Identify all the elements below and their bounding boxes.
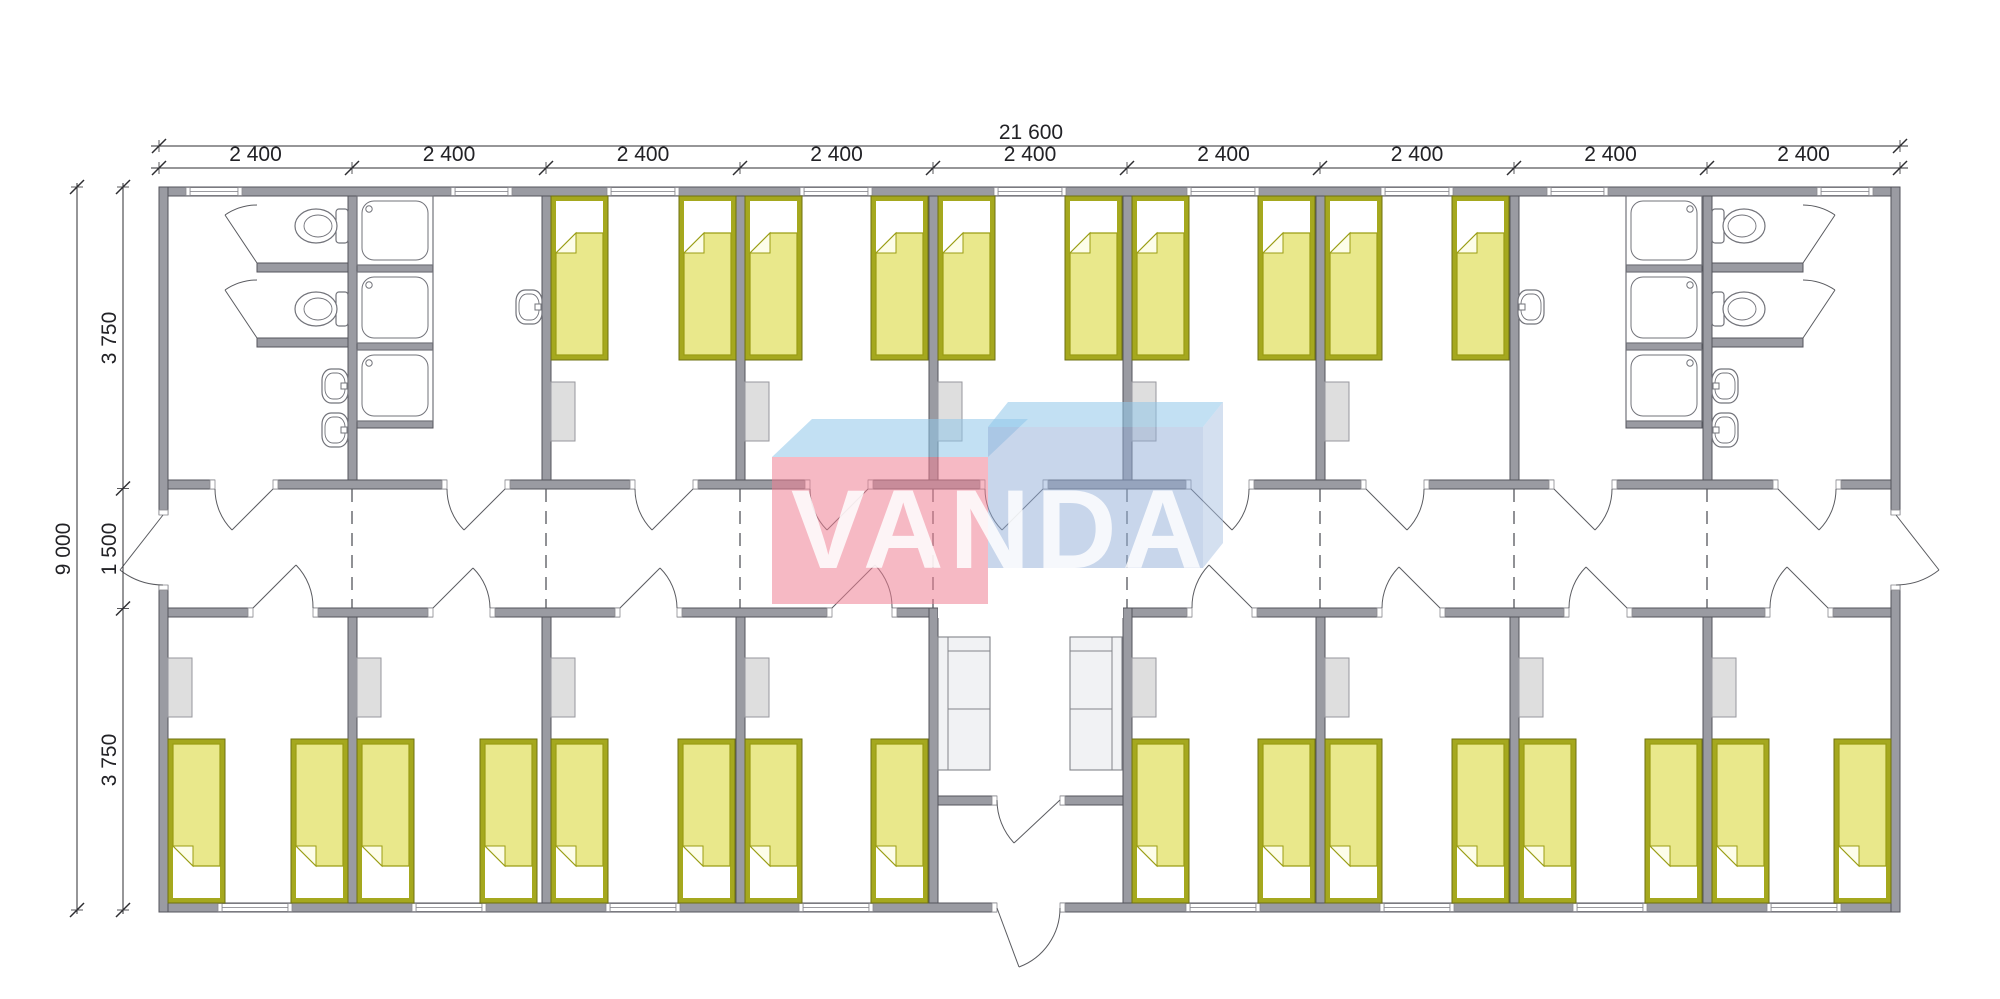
dimension-label: 1 500: [98, 523, 121, 576]
dimension-label: 3 750: [98, 312, 121, 365]
door-opening: [1890, 515, 1901, 585]
wardrobe: [1325, 382, 1349, 441]
window: [1573, 904, 1647, 912]
bed: [678, 739, 735, 903]
door-swing-arc: [225, 280, 257, 290]
door-opening: [1554, 479, 1612, 490]
door-swing-arc: [473, 568, 490, 608]
bed: [1132, 739, 1189, 903]
shower-tray: [1626, 350, 1702, 421]
door-leaf: [652, 489, 693, 530]
door-leaf: [1787, 567, 1828, 608]
door-leaf: [1399, 567, 1440, 608]
logo-top-face-right: [988, 402, 1223, 427]
wall: [1626, 343, 1702, 350]
window: [1817, 188, 1873, 196]
door-jamb: [1377, 608, 1382, 617]
wall: [1712, 263, 1803, 272]
door-jamb: [1564, 608, 1569, 617]
door-opening: [1778, 479, 1836, 490]
wall: [542, 617, 551, 903]
wall: [1123, 608, 1132, 903]
wall: [257, 263, 348, 272]
shower-outline: [1626, 350, 1702, 421]
bed: [551, 739, 608, 903]
toilet-bowl: [295, 292, 337, 326]
sofa: [938, 637, 990, 770]
wall: [1703, 617, 1712, 903]
door-jamb: [1440, 608, 1445, 617]
bed: [938, 196, 995, 360]
door-opening: [1569, 607, 1627, 618]
dimension-label: 2 400: [229, 143, 282, 166]
wash-basin: [322, 413, 348, 447]
door-swing-arc: [120, 570, 163, 585]
window: [412, 904, 486, 912]
door-leaf: [1366, 489, 1407, 530]
door-jamb: [442, 480, 447, 489]
bed: [1325, 196, 1382, 360]
door-jamb: [1891, 510, 1900, 515]
window-jamb: [1449, 188, 1453, 196]
shower-tray: [357, 196, 433, 265]
door-leaf: [1586, 567, 1627, 608]
door-leaf: [1803, 290, 1835, 338]
wardrobe: [745, 658, 769, 717]
door-swing-arc: [1819, 489, 1836, 530]
toilet-bowl: [1723, 209, 1765, 243]
door-swing-arc: [1803, 280, 1835, 290]
door-leaf: [225, 290, 257, 338]
door-opening: [158, 515, 169, 585]
door-opening: [1382, 607, 1440, 618]
door-swing-arc: [215, 489, 232, 530]
door-opening: [997, 902, 1060, 913]
door-jamb: [1249, 480, 1254, 489]
wardrobe: [1712, 658, 1736, 717]
door-leaf: [997, 908, 1019, 967]
door-jamb: [1060, 903, 1065, 912]
window-jamb: [799, 904, 803, 912]
wardrobe: [745, 382, 769, 441]
door-jamb: [1424, 480, 1429, 489]
bed: [1258, 739, 1315, 903]
door-jamb: [1891, 585, 1900, 590]
sofa-outline: [1070, 637, 1122, 770]
window-jamb: [1450, 904, 1454, 912]
basin-tap: [341, 427, 347, 433]
bed: [745, 196, 802, 360]
door-jamb: [1765, 608, 1770, 617]
door-leaf: [620, 568, 660, 608]
window-jamb: [607, 188, 611, 196]
window-jamb: [675, 188, 679, 196]
dimension-label: 2 400: [617, 143, 670, 166]
wall: [1626, 265, 1702, 272]
window-jamb: [288, 904, 292, 912]
wall: [1712, 338, 1803, 347]
door-opening: [1770, 607, 1828, 618]
door-opening: [832, 607, 892, 618]
door-jamb: [1836, 480, 1841, 489]
window-jamb: [1604, 188, 1608, 196]
door-jamb: [159, 510, 168, 515]
door-jamb: [1060, 796, 1065, 805]
wall: [348, 617, 357, 903]
wall: [357, 343, 433, 350]
window-jamb: [676, 904, 680, 912]
door-jamb: [428, 608, 433, 617]
window-jamb: [994, 188, 998, 196]
wardrobe: [1519, 658, 1543, 717]
door-jamb: [1549, 480, 1554, 489]
door-jamb: [992, 796, 997, 805]
door-leaf: [1803, 215, 1835, 263]
wall: [357, 265, 433, 272]
window-jamb: [218, 904, 222, 912]
window-jamb: [1817, 188, 1821, 196]
toilet: [295, 292, 348, 326]
door-swing-arc: [225, 205, 257, 215]
door-opening: [620, 607, 677, 618]
shower-tray: [1626, 196, 1702, 265]
window: [1767, 904, 1841, 912]
door-swing-arc: [1896, 570, 1939, 585]
door-swing-arc: [1770, 567, 1787, 608]
window-jamb: [451, 188, 455, 196]
door-opening: [215, 479, 273, 490]
door-jamb: [1627, 608, 1632, 617]
door-jamb: [313, 608, 318, 617]
wall: [357, 421, 433, 428]
wash-basin: [1712, 413, 1738, 447]
bed: [1712, 739, 1769, 903]
door-jamb: [677, 608, 682, 617]
door-leaf: [225, 215, 257, 263]
bed: [745, 739, 802, 903]
wardrobe: [1325, 658, 1349, 717]
bed: [1645, 739, 1702, 903]
window-jamb: [869, 904, 873, 912]
door-opening: [253, 607, 313, 618]
door-swing-arc: [1569, 567, 1586, 608]
wall: [736, 196, 745, 480]
door-swing-arc: [1803, 205, 1835, 215]
window-jamb: [482, 904, 486, 912]
wardrobe: [357, 658, 381, 717]
door-jamb: [615, 608, 620, 617]
sofa: [1070, 637, 1122, 770]
door-jamb: [1187, 608, 1192, 617]
bed: [1834, 739, 1891, 903]
bed: [1258, 196, 1315, 360]
bed: [1325, 739, 1382, 903]
door-leaf: [1209, 565, 1252, 608]
door-swing-arc: [1595, 489, 1612, 530]
wardrobe: [551, 382, 575, 441]
wall: [1510, 196, 1519, 480]
basin-tap: [1713, 383, 1719, 389]
wash-basin: [1712, 369, 1738, 403]
window-jamb: [1381, 188, 1385, 196]
basin-tap: [1713, 427, 1719, 433]
bed: [357, 739, 414, 903]
window: [1380, 904, 1454, 912]
window: [607, 188, 679, 196]
basin-tap: [1519, 304, 1525, 310]
shower-tray: [1626, 272, 1702, 343]
dimension-label: 2 400: [1004, 143, 1057, 166]
wall: [929, 608, 938, 903]
shower-tray: [357, 350, 433, 421]
toilet-bowl: [295, 209, 337, 243]
toilet-tank: [1712, 209, 1724, 243]
door-leaf: [1554, 489, 1595, 530]
wall: [736, 617, 745, 903]
dimension-label: 2 400: [1777, 143, 1830, 166]
door-jamb: [1612, 480, 1617, 489]
window: [800, 188, 872, 196]
shower-tray: [357, 272, 433, 343]
door-jamb: [892, 608, 897, 617]
window-jamb: [606, 904, 610, 912]
door-jamb: [693, 480, 698, 489]
door-leaf: [1896, 515, 1939, 570]
door-opening: [447, 479, 505, 490]
sofa-outline: [938, 637, 990, 770]
bed: [1132, 196, 1189, 360]
toilet-tank: [336, 209, 348, 243]
floor-plan-canvas: 21 6002 4002 4002 4002 4002 4002 4002 40…: [0, 0, 2000, 999]
toilet-bowl: [1723, 292, 1765, 326]
window-jamb: [1187, 188, 1191, 196]
door-swing-arc: [635, 489, 652, 530]
door-jamb: [1828, 608, 1833, 617]
vanda-watermark-text: VANDA: [791, 467, 1209, 592]
door-swing-arc: [997, 800, 1014, 843]
wash-basin: [1518, 290, 1544, 324]
window: [799, 904, 873, 912]
window-jamb: [1573, 904, 1577, 912]
dimension-label: 21 600: [999, 121, 1063, 144]
door-jamb: [630, 480, 635, 489]
door-leaf: [464, 489, 505, 530]
window-jamb: [1186, 904, 1190, 912]
toilet: [1712, 292, 1765, 326]
shower-outline: [1626, 272, 1702, 343]
door-jamb: [827, 608, 832, 617]
door-swing-arc: [1382, 567, 1399, 608]
door-jamb: [505, 480, 510, 489]
window-jamb: [1547, 188, 1551, 196]
dimension-label: 2 400: [810, 143, 863, 166]
door-swing-arc: [296, 565, 313, 608]
door-jamb: [1361, 480, 1366, 489]
toilet: [295, 209, 348, 243]
bed: [1519, 739, 1576, 903]
wardrobe: [168, 658, 192, 717]
window-jamb: [412, 904, 416, 912]
window: [1547, 188, 1608, 196]
bed: [480, 739, 537, 903]
door-jamb: [248, 608, 253, 617]
dimension-label: 2 400: [1197, 143, 1250, 166]
door-opening: [997, 795, 1060, 806]
basin-tap: [535, 304, 541, 310]
window-jamb: [1062, 188, 1066, 196]
door-leaf: [1778, 489, 1819, 530]
door-jamb: [490, 608, 495, 617]
window: [1381, 188, 1453, 196]
door-leaf: [253, 565, 296, 608]
window: [1187, 188, 1259, 196]
window-jamb: [1643, 904, 1647, 912]
wall: [1510, 617, 1519, 903]
window-jamb: [1837, 904, 1841, 912]
toilet-tank: [336, 292, 348, 326]
wall: [1703, 196, 1712, 480]
shower-outline: [357, 272, 433, 343]
bed: [679, 196, 736, 360]
window: [606, 904, 680, 912]
door-opening: [635, 479, 693, 490]
wardrobe: [1132, 658, 1156, 717]
toilet-tank: [1712, 292, 1724, 326]
wash-basin: [516, 290, 542, 324]
door-swing-arc: [1407, 489, 1424, 530]
bed: [291, 739, 348, 903]
wall: [348, 196, 357, 480]
dimension-label: 2 400: [1391, 143, 1444, 166]
window: [451, 188, 512, 196]
door-jamb: [1773, 480, 1778, 489]
wall: [1316, 617, 1325, 903]
door-jamb: [1252, 608, 1257, 617]
window-jamb: [238, 188, 242, 196]
window-jamb: [186, 188, 190, 196]
window: [186, 188, 242, 196]
door-swing-arc: [660, 568, 677, 608]
bed: [871, 739, 928, 903]
window: [994, 188, 1066, 196]
vanda-watermark: VANDA: [772, 402, 1223, 604]
door-opening: [1366, 479, 1424, 490]
window: [218, 904, 292, 912]
bed: [168, 739, 225, 903]
door-leaf: [232, 489, 273, 530]
wardrobe: [551, 658, 575, 717]
toilet: [1712, 209, 1765, 243]
wash-basin: [322, 369, 348, 403]
wall: [1316, 196, 1325, 480]
window-jamb: [508, 188, 512, 196]
dimension-label: 3 750: [98, 734, 121, 787]
bed: [1452, 739, 1509, 903]
door-swing-arc: [1019, 908, 1060, 967]
wall: [257, 338, 348, 347]
door-leaf: [120, 515, 163, 570]
bed: [871, 196, 928, 360]
basin-tap: [341, 383, 347, 389]
wall: [542, 196, 551, 480]
window-jamb: [800, 188, 804, 196]
window-jamb: [1256, 904, 1260, 912]
door-opening: [1192, 607, 1252, 618]
window-jamb: [1380, 904, 1384, 912]
window-jamb: [868, 188, 872, 196]
door-jamb: [992, 903, 997, 912]
door-leaf: [1014, 800, 1060, 843]
door-swing-arc: [1232, 489, 1249, 530]
door-jamb: [273, 480, 278, 489]
door-opening: [433, 607, 490, 618]
bed: [551, 196, 608, 360]
floor-plan-drawing: 21 6002 4002 4002 4002 4002 4002 4002 40…: [0, 0, 2000, 999]
window-jamb: [1869, 188, 1873, 196]
window-jamb: [1255, 188, 1259, 196]
door-jamb: [210, 480, 215, 489]
door-opening: [938, 607, 1123, 618]
shower-outline: [357, 350, 433, 421]
door-leaf: [433, 568, 473, 608]
dimension-label: 2 400: [1584, 143, 1637, 166]
window-jamb: [1767, 904, 1771, 912]
dimension-label: 9 000: [52, 523, 75, 576]
bed: [1452, 196, 1509, 360]
door-jamb: [159, 585, 168, 590]
door-swing-arc: [447, 489, 464, 530]
window: [1186, 904, 1260, 912]
bed: [1065, 196, 1122, 360]
dimension-label: 2 400: [423, 143, 476, 166]
wall: [1626, 421, 1702, 428]
